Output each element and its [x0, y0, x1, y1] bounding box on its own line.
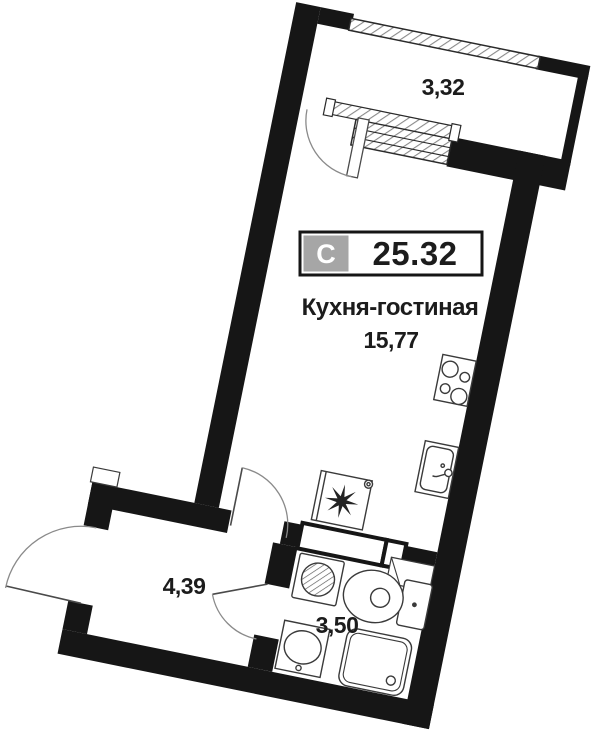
- wall-balcony-top-left-cap: [317, 7, 354, 30]
- wall-bath-left-lower: [248, 634, 279, 671]
- floorplan-image: 3,32 С 25.32 Кухня-гостиная 15,77 4,39 3…: [0, 0, 600, 747]
- balcony-glazing-band: [349, 18, 541, 68]
- wall-balcony-divider: [446, 137, 571, 191]
- badge-total-area: 25.32: [372, 235, 457, 272]
- washing-machine-icon: [291, 553, 344, 606]
- bathroom-area-label: 3,50: [316, 612, 359, 638]
- wall-entrance-lower: [63, 601, 93, 634]
- doors: [6, 68, 372, 641]
- badge-type-letter: С: [316, 239, 336, 269]
- bathroom-door-arc: [205, 594, 263, 639]
- wall-bath-left-upper: [265, 542, 298, 588]
- kitchen-living-name-label: Кухня-гостиная: [302, 294, 479, 321]
- kitchen-door-leaf: [231, 468, 243, 526]
- wall-balcony-right: [560, 72, 589, 166]
- fan-appliance-icon: [311, 471, 373, 531]
- floor-plan-rotated-group: [0, 0, 591, 734]
- hallway-area-label: 4,39: [163, 573, 206, 599]
- wall-entrance-upper: [84, 482, 117, 530]
- bathroom-door-leaf: [212, 574, 267, 605]
- type-area-badge: С 25.32: [300, 232, 482, 275]
- kitchen-living-area-label: 15,77: [363, 327, 418, 353]
- floorplan-svg: 3,32 С 25.32 Кухня-гостиная 15,77 4,39 3…: [0, 0, 600, 747]
- balcony-area-label: 3,32: [422, 74, 465, 100]
- entrance-door-leaf: [6, 586, 82, 603]
